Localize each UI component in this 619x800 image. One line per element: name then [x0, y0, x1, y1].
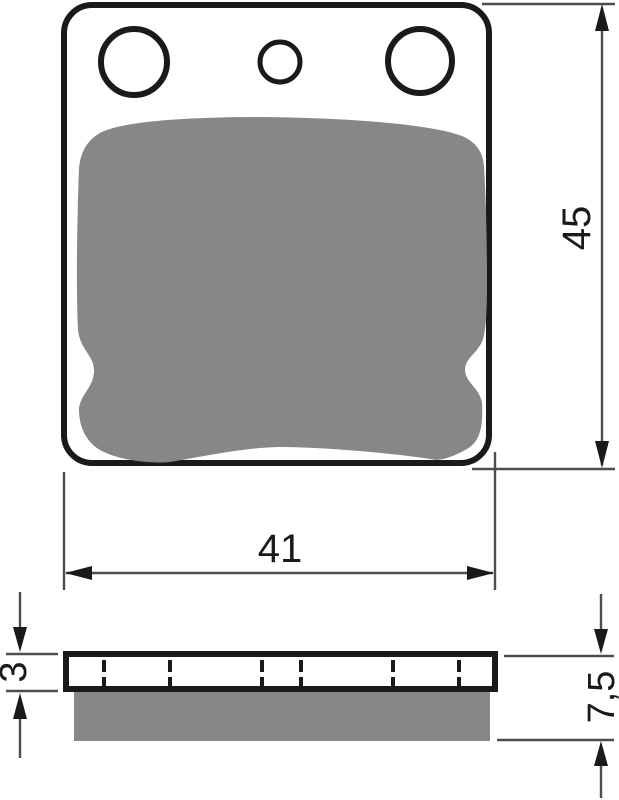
friction-material-face	[77, 117, 487, 463]
backplate-profile	[66, 654, 495, 689]
arrowhead-up-icon	[13, 693, 27, 719]
arrowhead-down-icon	[595, 441, 609, 468]
mounting-hole-left	[101, 29, 167, 95]
arrowhead-up-icon	[594, 741, 608, 766]
dimension-label-height: 45	[555, 206, 599, 251]
brake-pad-drawing: 45 41 3	[0, 0, 619, 800]
mounting-hole-right	[388, 29, 452, 93]
center-hole-small	[260, 42, 300, 82]
dimension-label-width: 41	[258, 527, 303, 571]
side-view	[66, 654, 495, 741]
arrowhead-right-icon	[467, 566, 494, 580]
arrowhead-left-icon	[65, 566, 92, 580]
drawing-page: 45 41 3	[0, 0, 619, 800]
dimension-pad-height: 45	[472, 4, 615, 469]
top-view	[64, 5, 489, 463]
dimension-total-thickness: 7,5	[497, 594, 619, 798]
arrowhead-up-icon	[595, 4, 609, 31]
dimension-backplate-thickness: 3	[0, 592, 58, 758]
dimension-label-total-thickness: 7,5	[581, 671, 619, 724]
arrowhead-down-icon	[594, 629, 608, 654]
dimension-label-plate-thickness: 3	[0, 661, 35, 682]
dimension-pad-width: 41	[64, 452, 495, 590]
friction-material-profile	[74, 692, 490, 741]
arrowhead-down-icon	[13, 627, 27, 652]
